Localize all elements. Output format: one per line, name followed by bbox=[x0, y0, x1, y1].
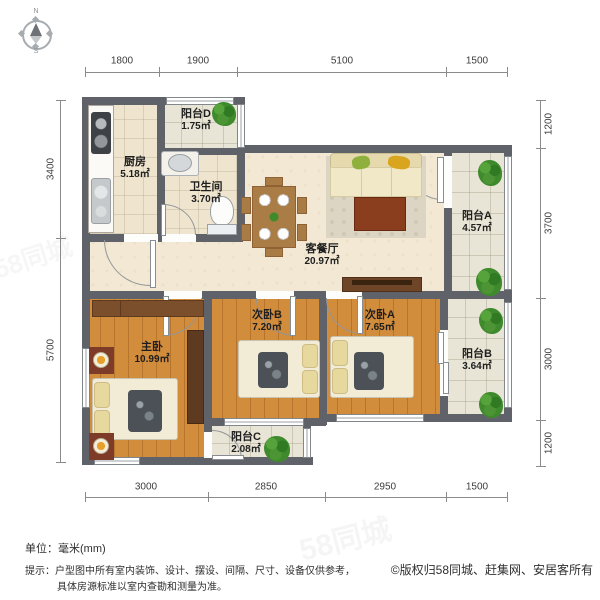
coffee-table bbox=[354, 197, 406, 231]
dim-label: 1500 bbox=[466, 482, 488, 493]
dining-chair bbox=[297, 224, 307, 241]
toilet-tank bbox=[207, 224, 237, 235]
wall-segment bbox=[319, 291, 327, 425]
room-label-living: 客餐厅20.97㎡ bbox=[304, 243, 339, 267]
plant-icon bbox=[479, 392, 503, 418]
dining-chair bbox=[241, 197, 251, 214]
window bbox=[504, 156, 512, 290]
room-label-bedroom-b: 次卧B7.20㎡ bbox=[252, 309, 282, 333]
dim-label: 3400 bbox=[46, 158, 57, 180]
plant-icon bbox=[264, 436, 290, 462]
dim-label: 1500 bbox=[466, 56, 488, 67]
bed-pillow bbox=[302, 370, 318, 394]
lamp bbox=[93, 352, 109, 368]
balcony-a-door-leaf bbox=[437, 157, 444, 203]
dining-chair bbox=[297, 197, 307, 214]
window bbox=[504, 302, 512, 408]
door-opening bbox=[444, 156, 452, 208]
plant-icon bbox=[478, 160, 502, 186]
bed-pillow bbox=[94, 382, 110, 408]
window bbox=[303, 428, 311, 458]
wall-segment bbox=[237, 145, 511, 153]
bathroom-door-leaf bbox=[161, 204, 166, 236]
entrance-door-leaf bbox=[150, 240, 156, 288]
bed-blanket bbox=[128, 390, 162, 432]
plant-icon bbox=[479, 308, 503, 334]
dim-label: 3000 bbox=[135, 482, 157, 493]
watermark: 58同城 bbox=[0, 226, 77, 286]
bathroom-sink bbox=[168, 154, 192, 172]
bedroom-b-door-leaf bbox=[290, 296, 296, 336]
bedroom-a-door-leaf bbox=[357, 296, 363, 334]
window bbox=[237, 104, 245, 148]
plant-icon bbox=[212, 102, 236, 126]
dim-label: 3000 bbox=[544, 348, 555, 370]
lamp bbox=[93, 438, 109, 454]
compass-needle-north-icon bbox=[30, 23, 42, 36]
dining-chair bbox=[265, 248, 283, 257]
bed-pillow bbox=[332, 340, 348, 366]
room-label-bathroom: 卫生间3.70㎡ bbox=[190, 181, 223, 205]
watermark: 58同城 bbox=[294, 504, 395, 569]
dim-label: 3700 bbox=[544, 212, 555, 234]
room-label-master: 主卧10.99㎡ bbox=[134, 341, 169, 365]
window bbox=[224, 418, 304, 426]
dim-label: 2950 bbox=[374, 482, 396, 493]
dining-chair bbox=[265, 177, 283, 186]
dim-label: 5100 bbox=[331, 56, 353, 67]
floor-plan-canvas: N S 1800 1900 5100 1500 3000 2850 2950 1… bbox=[0, 0, 600, 600]
dim-label: 1200 bbox=[544, 432, 555, 454]
sofa-seat bbox=[330, 167, 422, 197]
dim-label: 1800 bbox=[111, 56, 133, 67]
sliding-door-leaf bbox=[443, 362, 449, 394]
window bbox=[336, 414, 424, 422]
room-label-balcony-d: 阳台D1.75㎡ bbox=[181, 108, 211, 132]
dining-chair bbox=[241, 224, 251, 241]
bed-blanket bbox=[258, 352, 288, 388]
wardrobe bbox=[187, 330, 204, 424]
compass-north-label: N bbox=[33, 8, 38, 15]
balcony-c-door-leaf bbox=[212, 455, 244, 460]
door-opening bbox=[162, 234, 196, 242]
room-label-balcony-a: 阳台A4.57㎡ bbox=[462, 210, 492, 234]
dining-table bbox=[252, 186, 296, 248]
compass-rose: N S bbox=[16, 10, 56, 56]
room-label-kitchen: 厨房5.18㎡ bbox=[120, 156, 149, 180]
room-label-balcony-b: 阳台B3.64㎡ bbox=[462, 348, 492, 372]
dim-label: 5700 bbox=[46, 339, 57, 361]
compass-needle-south-icon bbox=[30, 36, 42, 44]
dim-label: 1900 bbox=[187, 56, 209, 67]
sliding-door-leaf bbox=[438, 332, 444, 364]
dim-label: 1200 bbox=[544, 113, 555, 135]
bed-blanket bbox=[354, 352, 384, 390]
stove bbox=[91, 112, 111, 154]
bed-pillow bbox=[332, 368, 348, 394]
copyright-text: ©版权归58同城、赶集网、安居客所有 bbox=[391, 561, 593, 578]
unit-label: 单位：毫米(mm) bbox=[25, 540, 106, 556]
dim-label: 2850 bbox=[255, 482, 277, 493]
kitchen-sink bbox=[91, 178, 111, 224]
plant-icon bbox=[476, 268, 502, 296]
room-label-balcony-c: 阳台C2.08㎡ bbox=[231, 431, 261, 455]
bed-pillow bbox=[302, 344, 318, 368]
compass-south-label: S bbox=[34, 48, 39, 55]
tv bbox=[352, 280, 412, 285]
door-opening bbox=[204, 432, 212, 458]
room-label-bedroom-a: 次卧A7.65㎡ bbox=[365, 309, 395, 333]
tip-line-1: 提示：户型图中所有室内装饰、设计、摆设、间隔、尺寸、设备仅供参考， bbox=[25, 562, 355, 577]
wardrobe bbox=[92, 300, 204, 317]
tip-line-2: 具体房源标准以室内查勘和测量为准。 bbox=[57, 578, 227, 593]
